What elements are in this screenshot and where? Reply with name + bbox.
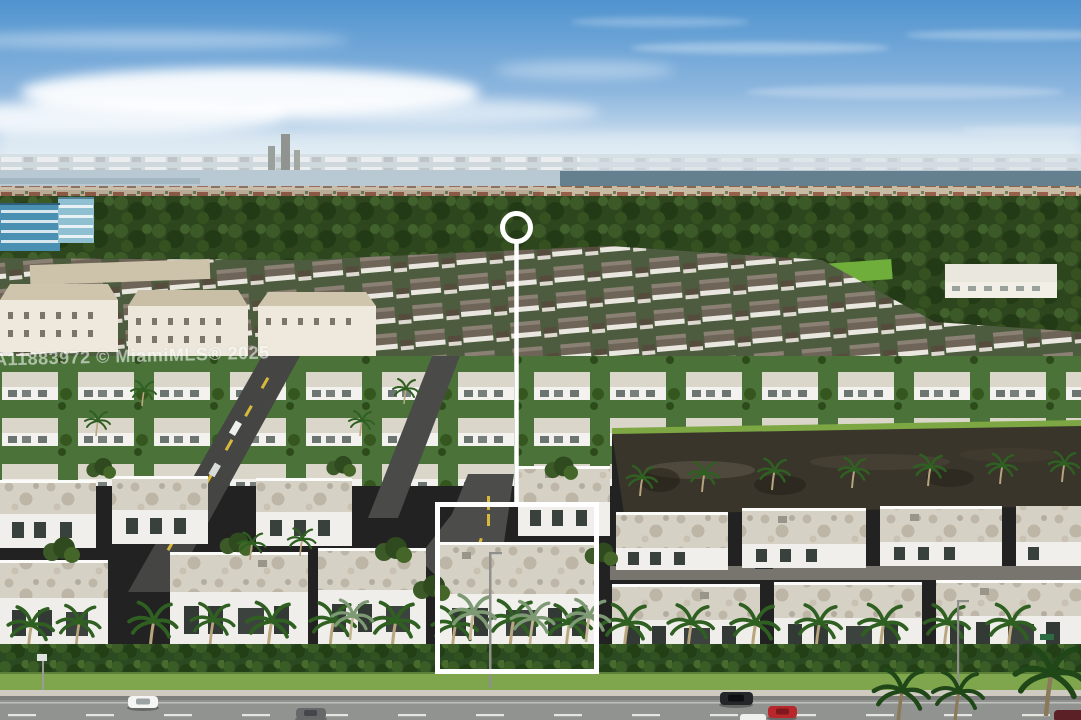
black-suv: [719, 692, 753, 708]
lakefront-homes: [616, 506, 1081, 570]
street-light-pole: [489, 552, 492, 688]
clubhouse-building: [945, 264, 1057, 298]
apartment-buildings: [0, 197, 94, 251]
green-street-sign: [1040, 634, 1054, 640]
gray-sedan: [295, 708, 327, 720]
small-road-sign: [37, 654, 47, 661]
street-light-pole: [957, 600, 959, 690]
white-car: [127, 696, 159, 711]
maroon-car-corner: [1054, 710, 1081, 720]
sky: [0, 0, 1081, 164]
red-car: [767, 706, 797, 720]
grass-strip: [0, 674, 1081, 690]
aerial-photo: A11883972 © MiamiMLS® 2025: [0, 0, 1081, 720]
white-car-edge: [740, 714, 766, 720]
